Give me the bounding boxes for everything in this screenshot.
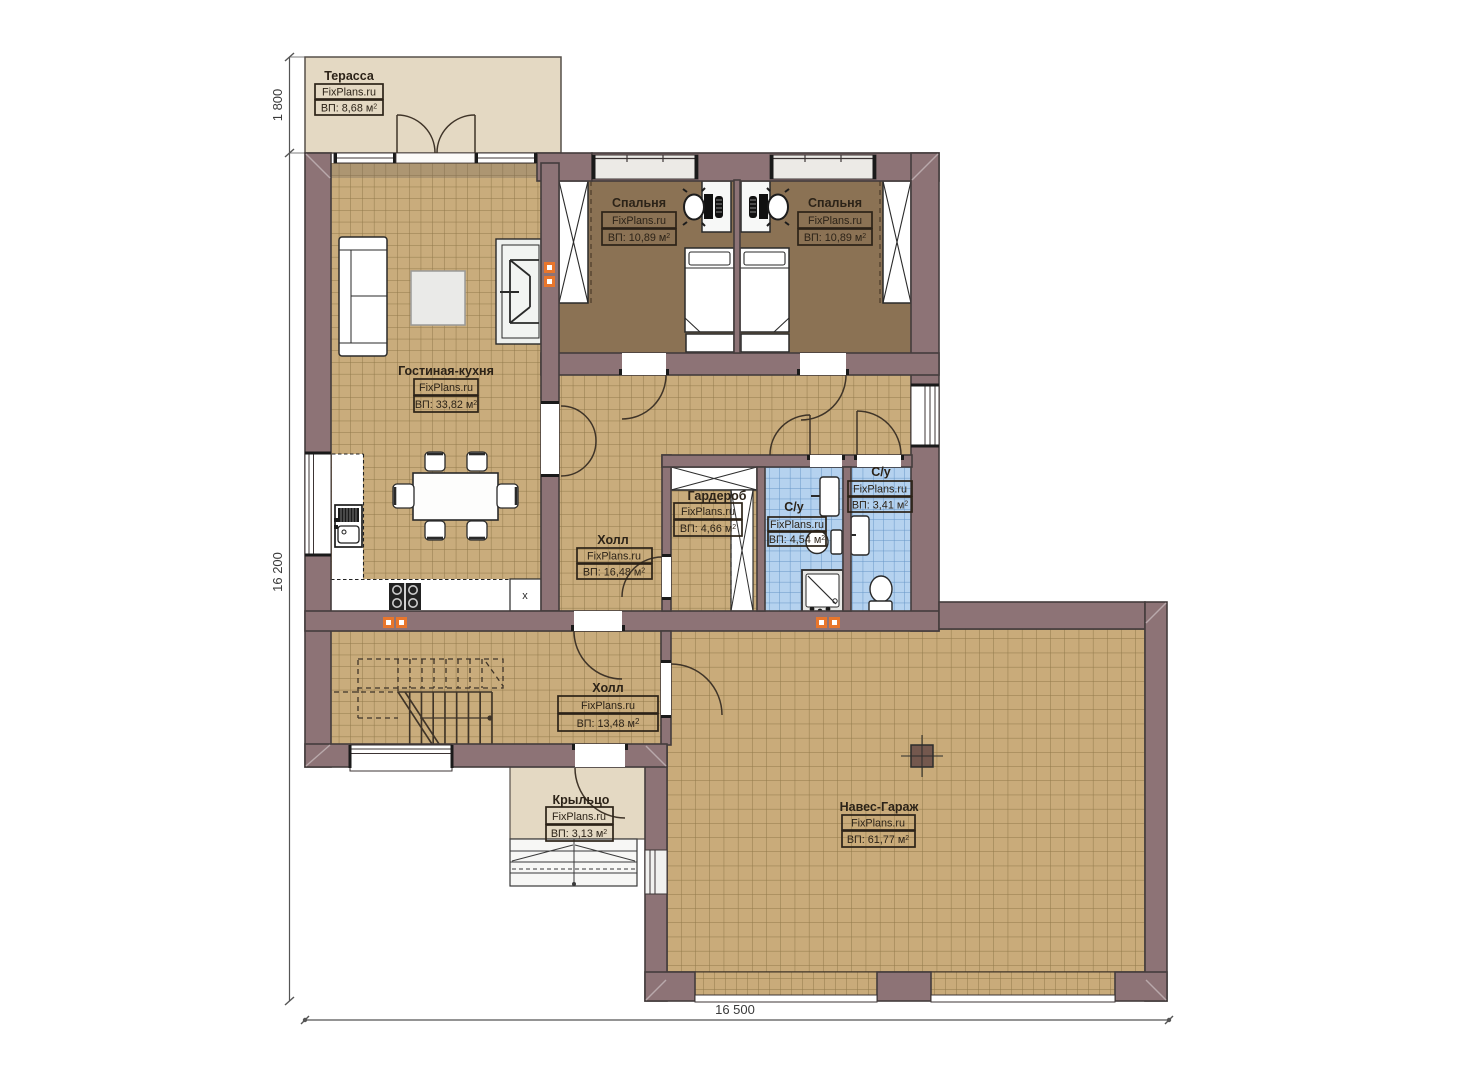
svg-text:FixPlans.ru: FixPlans.ru — [853, 484, 907, 496]
svg-text:FixPlans.ru: FixPlans.ru — [581, 700, 635, 712]
svg-text:FixPlans.ru: FixPlans.ru — [587, 551, 641, 563]
svg-text:ВП: 10,89 м2: ВП: 10,89 м2 — [804, 232, 866, 244]
svg-text:Терасса: Терасса — [324, 69, 375, 83]
svg-text:FixPlans.ru: FixPlans.ru — [681, 506, 735, 518]
svg-text:ВП: 3,41 м2: ВП: 3,41 м2 — [852, 500, 908, 512]
svg-text:ВП: 13,48 м2: ВП: 13,48 м2 — [577, 717, 640, 730]
svg-text:1 800: 1 800 — [270, 89, 285, 122]
svg-text:16 500: 16 500 — [715, 1002, 755, 1017]
svg-text:Спальня: Спальня — [808, 196, 862, 210]
svg-text:Холл: Холл — [592, 681, 623, 695]
svg-text:FixPlans.ru: FixPlans.ru — [552, 811, 606, 823]
svg-text:FixPlans.ru: FixPlans.ru — [851, 818, 905, 830]
svg-text:FixPlans.ru: FixPlans.ru — [808, 215, 862, 227]
svg-text:С/у: С/у — [871, 465, 891, 479]
svg-text:ВП: 16,48 м2: ВП: 16,48 м2 — [583, 567, 645, 579]
svg-text:Навес-Гараж: Навес-Гараж — [840, 800, 919, 814]
svg-text:ВП: 3,13 м2: ВП: 3,13 м2 — [551, 828, 607, 840]
svg-text:16 200: 16 200 — [270, 552, 285, 592]
svg-text:ВП: 33,82 м2: ВП: 33,82 м2 — [415, 399, 477, 411]
svg-text:Крыльцо: Крыльцо — [553, 793, 610, 807]
svg-text:ВП: 8,68 м2: ВП: 8,68 м2 — [321, 103, 377, 115]
svg-text:ВП: 61,77 м2: ВП: 61,77 м2 — [847, 834, 909, 846]
svg-text:FixPlans.ru: FixPlans.ru — [612, 215, 666, 227]
svg-text:FixPlans.ru: FixPlans.ru — [770, 519, 824, 531]
svg-text:С/у: С/у — [784, 500, 804, 514]
svg-text:x: x — [522, 590, 528, 602]
svg-text:Гардероб: Гардероб — [687, 489, 746, 503]
svg-text:Холл: Холл — [597, 533, 628, 547]
svg-text:Гостиная-кухня: Гостиная-кухня — [398, 364, 494, 378]
svg-text:FixPlans.ru: FixPlans.ru — [322, 87, 376, 99]
svg-text:Спальня: Спальня — [612, 196, 666, 210]
svg-text:FixPlans.ru: FixPlans.ru — [419, 382, 473, 394]
svg-text:ВП: 4,54 м2: ВП: 4,54 м2 — [769, 534, 825, 546]
svg-text:ВП: 4,66 м2: ВП: 4,66 м2 — [680, 523, 736, 535]
svg-text:ВП: 10,89 м2: ВП: 10,89 м2 — [608, 232, 670, 244]
